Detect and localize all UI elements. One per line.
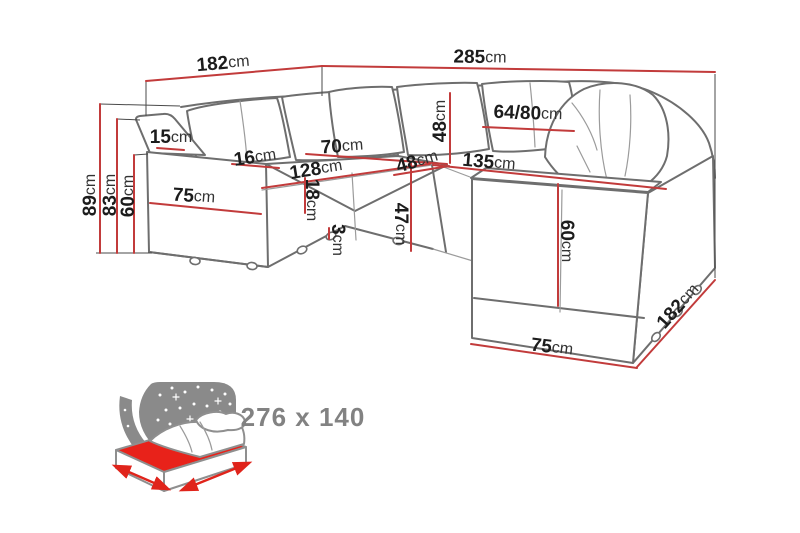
sofa-dimension-diagram-page: 182cm 285cm 89cm 83cm 60cm 15cm 16cm 70c… <box>0 0 800 533</box>
sofa-leg <box>296 245 308 256</box>
dim-label-seat-length-right: 135cm <box>462 149 517 175</box>
sofa-dimension-diagram: 182cm 285cm 89cm 83cm 60cm 15cm 16cm 70c… <box>0 0 800 533</box>
dim-label-pillow-width: 64/80cm <box>493 101 563 124</box>
dimline-285 <box>322 66 715 72</box>
dim-label-arm-panel-height: 60cm <box>557 220 578 262</box>
sofa-leg <box>247 262 258 270</box>
dim-label-seat-height: 47cm <box>391 203 412 245</box>
dim-label-arm-height-left: 60cm <box>118 175 139 217</box>
sleeping-function-icon <box>115 382 249 491</box>
dim-label-armrest-thickness: 15cm <box>150 127 192 148</box>
dim-label-leg-height: 3cm <box>328 224 349 256</box>
dim-label-total-height: 89cm <box>80 174 101 216</box>
base-join <box>433 249 473 261</box>
dim-label-width-right: 285cm <box>453 46 506 68</box>
sofa-leg <box>190 257 201 265</box>
sofa-illustration <box>136 81 715 363</box>
dim-label-back-cushion-height: 48cm <box>430 100 451 142</box>
dim-label-seat-thickness: 18cm <box>302 179 323 221</box>
seat-corner-edge <box>432 165 446 252</box>
dim-label-arm-front-width-left: 75cm <box>172 184 216 208</box>
sleeping-area-size: 276 x 140 <box>241 402 366 432</box>
chaise-front-panel <box>472 179 648 363</box>
